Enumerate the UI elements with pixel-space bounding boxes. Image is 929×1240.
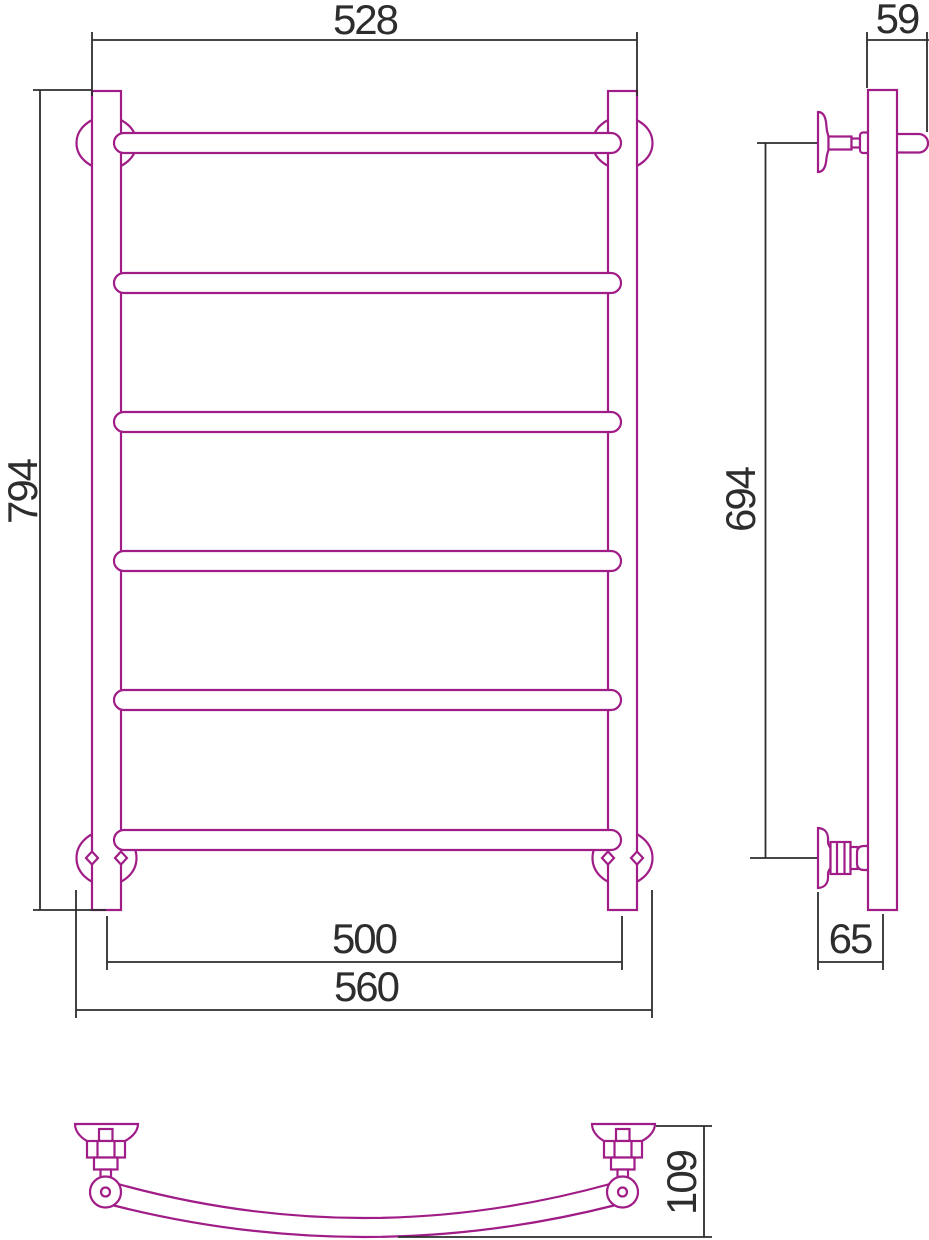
left-post <box>92 91 121 910</box>
drawing-canvas: 528 59 794 694 500 560 65 109 <box>0 0 929 1240</box>
bottom-left-bracket-stud <box>99 1129 113 1141</box>
rung-1 <box>114 133 621 153</box>
towel-rail-drawing: 528 59 794 694 500 560 65 109 <box>0 0 929 1240</box>
side-bottom-bracket-bell <box>818 828 831 888</box>
bottom-right-post-bore <box>618 1188 627 1197</box>
bottom-right-bracket-stud <box>616 1129 630 1141</box>
bottom-right-bracket-nut <box>604 1141 642 1158</box>
bottom-right-bracket-mid <box>611 1158 635 1170</box>
dim-65-label: 65 <box>829 915 872 962</box>
dim-59-label: 59 <box>876 0 919 42</box>
side-top-bracket-step <box>852 139 861 148</box>
curved-rail-tube <box>112 1184 616 1237</box>
bottom-view <box>75 1124 655 1237</box>
rung-2 <box>114 273 621 293</box>
dimension-labels: 528 59 794 694 500 560 65 109 <box>0 0 919 1215</box>
rung-4 <box>114 551 621 571</box>
side-top-bracket-bell <box>818 112 829 172</box>
dim-794-label: 794 <box>0 458 46 524</box>
bottom-left-bracket-mid <box>94 1158 118 1170</box>
bottom-left-bracket-nut <box>87 1141 125 1158</box>
side-post-bar <box>868 90 897 910</box>
side-view <box>818 90 928 910</box>
dim-560-label: 560 <box>334 963 399 1010</box>
dimensions <box>33 32 929 1237</box>
bottom-left-post-bore <box>101 1188 110 1197</box>
dim-528-label: 528 <box>333 0 398 43</box>
right-post <box>608 91 637 910</box>
dim-694-label: 694 <box>717 466 764 532</box>
dim-500-label: 500 <box>332 915 397 962</box>
rung-3 <box>114 412 621 432</box>
rung-6 <box>114 830 621 850</box>
rung-5 <box>114 690 621 710</box>
dim-109-label: 109 <box>658 1150 705 1215</box>
side-top-bracket-stem <box>829 137 852 150</box>
front-view <box>77 91 653 910</box>
side-bottom-bracket-nut <box>831 842 851 874</box>
